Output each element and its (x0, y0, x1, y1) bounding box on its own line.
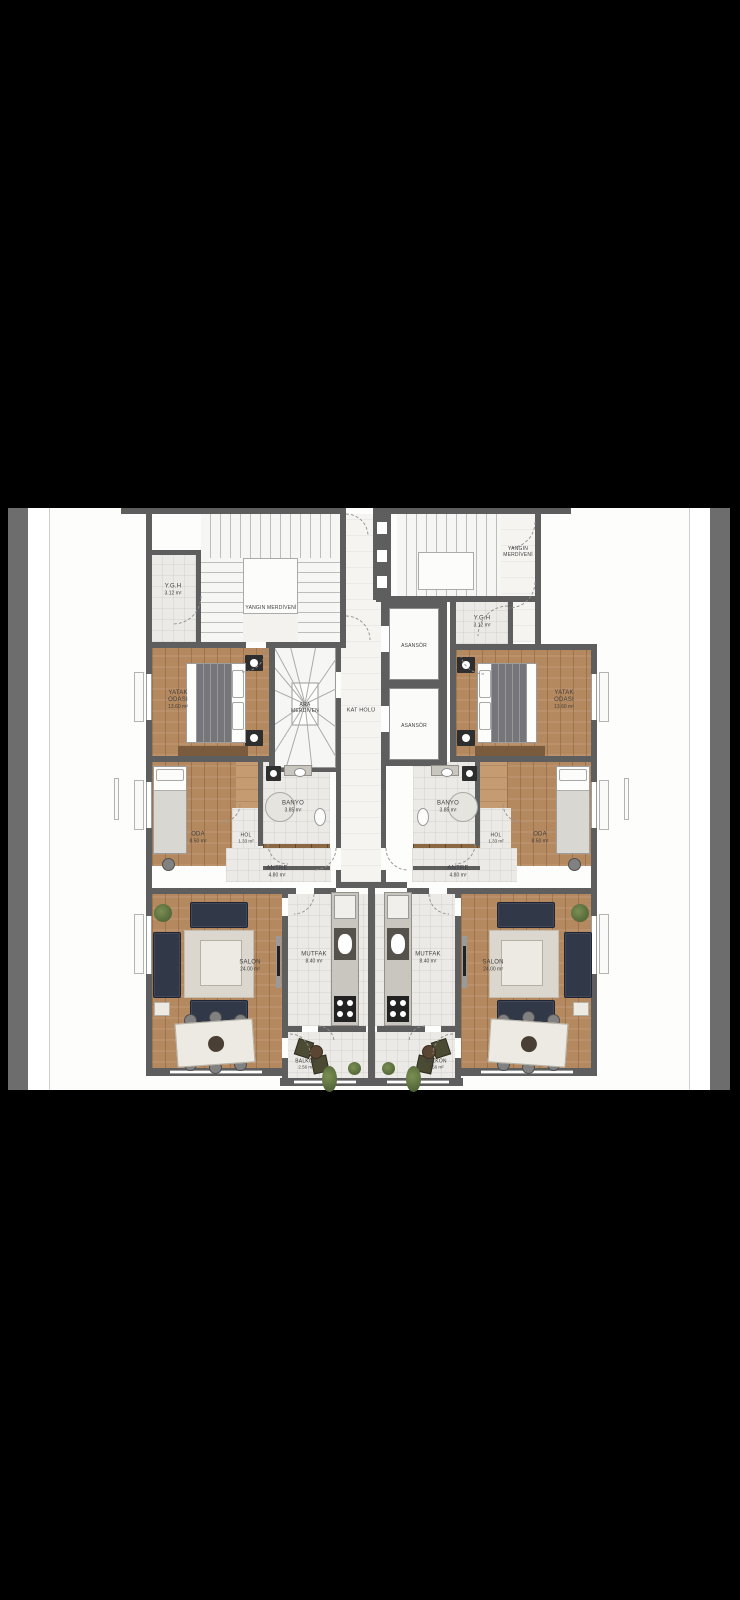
room-label-hol-left: HOL1.33 m² (238, 832, 253, 843)
room-label-oda-right: ODA8.50 m² (532, 831, 549, 844)
room-label-banyo-left: BANYO3.85 m² (282, 800, 304, 813)
room-label-ygh-right: Y.G.H3.12 m² (474, 615, 491, 628)
room-label-yangin-merdiveni-right: YANGIN MERDİVENİ (500, 546, 536, 558)
door-arc-layer (50, 508, 691, 1090)
room-label-balkon-left: BALKON2.56 m² (295, 1058, 317, 1069)
room-label-salon-right: SALON24.00 m² (482, 959, 503, 972)
room-label-yangin-merdiveni-left: YANGIN MERDİVENİ (245, 605, 296, 611)
room-label-ara-merdiven: ARA MERDİVEN (287, 702, 323, 714)
room-label-antre-left: ANTRE4.80 m² (266, 865, 287, 878)
room-label-hol-right: HOL1.33 m² (488, 832, 503, 843)
room-label-salon-left: SALON24.00 m² (239, 959, 260, 972)
room-label-yatak-odasi-left: YATAK ODASI13.60 m² (160, 690, 196, 710)
floor-plan-image[interactable]: Y.G.H3.12 m² YANGIN MERDİVENİ YANGIN MER… (49, 508, 690, 1090)
room-label-asansor-lower: ASANSÖR (401, 723, 427, 729)
room-label-mutfak-left: MUTFAK8.40 m² (301, 951, 327, 964)
room-label-ygh-left: Y.G.H3.12 m² (165, 583, 182, 596)
room-label-banyo-right: BANYO3.85 m² (437, 800, 459, 813)
room-label-balkon-right: BALKON2.56 m² (425, 1058, 447, 1069)
room-label-oda-left: ODA8.50 m² (190, 831, 207, 844)
room-label-asansor-upper: ASANSÖR (401, 643, 427, 649)
room-label-mutfak-right: MUTFAK8.40 m² (415, 951, 441, 964)
next-image-sliver[interactable] (710, 508, 730, 1090)
room-label-kat-holu: KAT HOLÜ (347, 708, 376, 715)
prev-image-sliver[interactable] (8, 508, 28, 1090)
room-label-antre-right: ANTRE4.80 m² (447, 865, 468, 878)
room-label-yatak-odasi-right: YATAK ODASI13.60 m² (546, 690, 582, 710)
screen: Y.G.H3.12 m² YANGIN MERDİVENİ YANGIN MER… (0, 0, 740, 1600)
